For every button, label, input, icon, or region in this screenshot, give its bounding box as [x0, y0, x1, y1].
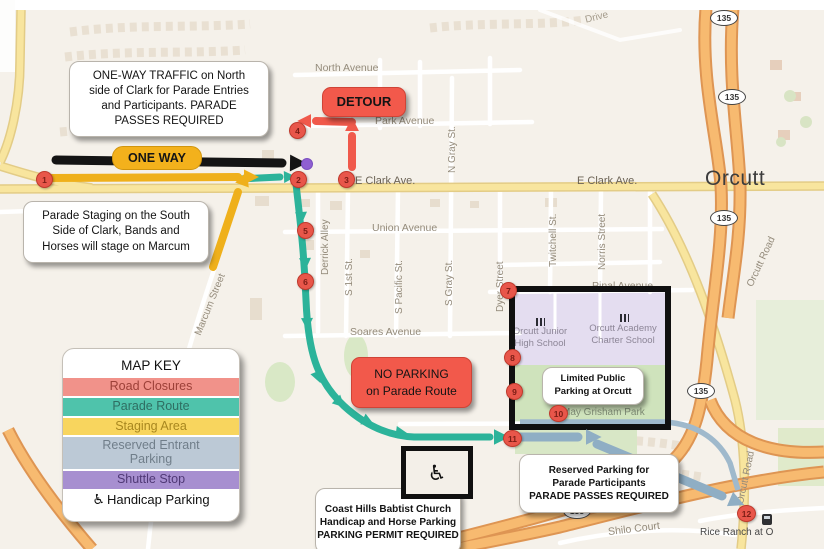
- parade-route-map: North Avenue Park Avenue E Clark Ave. E …: [0, 0, 824, 549]
- handicap-icon: ♿: [428, 461, 447, 485]
- school-icon: [536, 318, 545, 326]
- route-marker: 9: [506, 383, 523, 400]
- one-way-sign: ONE WAY: [112, 146, 202, 170]
- legend-handicap-parking: ♿ Handicap Parking: [63, 492, 239, 508]
- route-marker: 11: [503, 430, 522, 447]
- street-label: E Clark Ave.: [577, 175, 637, 187]
- handicap-icon: ♿: [92, 492, 105, 508]
- reserved-parking-note: Reserved Parking for Parade Participants…: [519, 454, 679, 513]
- route-marker: 3: [338, 171, 355, 188]
- highway-shield: 135: [710, 210, 738, 226]
- legend-parade-route: Parade Route: [63, 398, 239, 416]
- street-label: Norris Street: [597, 214, 608, 270]
- map-key: MAP KEY Road Closures Parade Route Stagi…: [62, 348, 240, 522]
- legend-handicap-label: Handicap Parking: [107, 492, 210, 507]
- legend-road-closures: Road Closures: [63, 378, 239, 396]
- school-label: Orcutt Academy Charter School: [580, 323, 666, 347]
- street-label: Shilo Court: [607, 520, 660, 538]
- legend-reserved-entrant-parking: Reserved Entrant Parking: [63, 437, 239, 469]
- park-label: May Grisham Park: [562, 407, 645, 418]
- highway-shield: 135: [687, 383, 715, 399]
- legend-shuttle-stop: Shuttle Stop: [63, 471, 239, 489]
- route-marker: 6: [297, 273, 314, 290]
- route-marker: 10: [549, 405, 568, 422]
- street-label: Union Avenue: [372, 222, 437, 234]
- school-label: Orcutt Junior High School: [505, 326, 575, 350]
- street-label: Twitchell St.: [548, 214, 559, 267]
- street-label: S Pacific St.: [394, 260, 405, 314]
- detour-sign: DETOUR: [322, 87, 406, 117]
- shuttle-stop-dot: [302, 159, 313, 170]
- map-key-title: MAP KEY: [63, 358, 239, 373]
- street-label: S Gray St.: [444, 260, 455, 306]
- street-label: Soares Avenue: [350, 326, 421, 338]
- route-marker: 4: [289, 122, 306, 139]
- no-parking-sign: NO PARKING on Parade Route: [351, 357, 472, 408]
- route-marker: 7: [500, 282, 517, 299]
- street-label: S 1st St.: [344, 258, 355, 296]
- staging-note: Parade Staging on the South Side of Clar…: [23, 201, 209, 263]
- street-label: Orcutt Road: [735, 450, 757, 505]
- street-label: E Clark Ave.: [355, 175, 415, 187]
- route-marker: 1: [36, 171, 53, 188]
- route-marker: 12: [737, 505, 756, 522]
- street-label: Pinal Avenue: [592, 280, 653, 292]
- street-label: Derrick Alley: [320, 219, 331, 275]
- street-label: Marcum Street: [193, 272, 228, 337]
- bus-stop-icon: [762, 514, 772, 525]
- detour-arrows: [297, 114, 359, 167]
- street-label: North Avenue: [315, 62, 378, 74]
- one-way-traffic-note: ONE-WAY TRAFFIC on North side of Clark f…: [69, 61, 269, 137]
- route-marker: 8: [504, 349, 521, 366]
- legend-staging-area: Staging Area: [63, 418, 239, 436]
- street-label: Orcutt Road: [745, 235, 778, 289]
- school-icon: [620, 314, 629, 322]
- route-marker: 2: [290, 171, 307, 188]
- handicap-parking-box: ♿: [401, 446, 473, 499]
- street-label: N Gray St.: [447, 126, 458, 173]
- transit-stop-label: Rice Ranch at O: [700, 527, 773, 538]
- route-marker: 5: [297, 222, 314, 239]
- town-label: Orcutt: [705, 167, 765, 191]
- park-area-south: [515, 426, 637, 454]
- street-label: Drive: [584, 9, 609, 25]
- highway-shield: 135: [718, 89, 746, 105]
- limited-parking-note: Limited Public Parking at Orcutt: [542, 367, 644, 405]
- corner-margin: [0, 0, 15, 72]
- highway-shield: 135: [710, 10, 738, 26]
- top-margin: [0, 0, 824, 10]
